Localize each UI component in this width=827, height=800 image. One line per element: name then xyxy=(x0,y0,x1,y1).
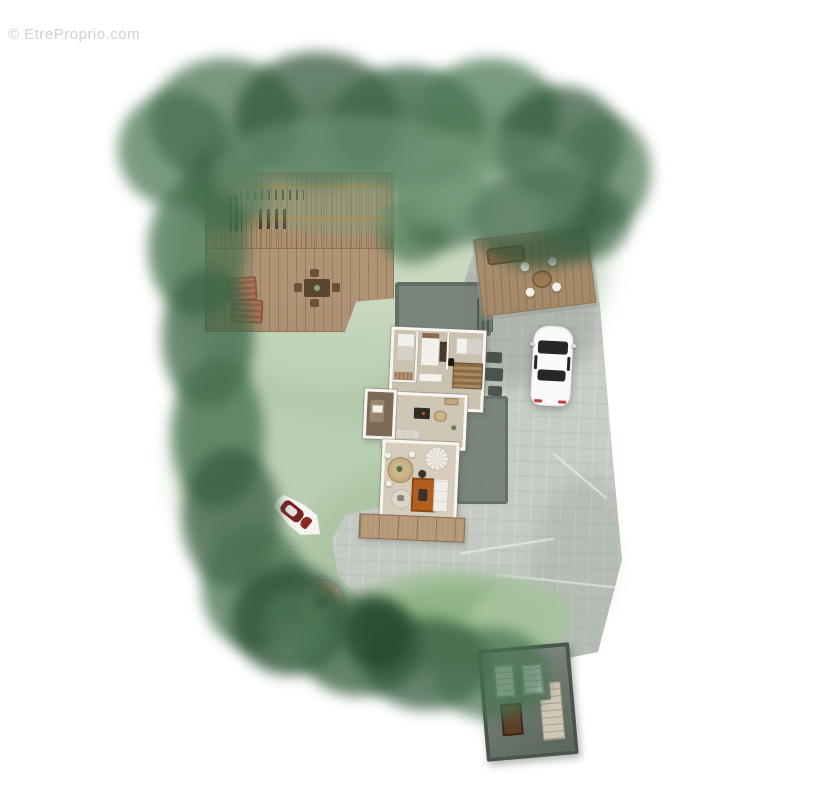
round-rug xyxy=(391,489,412,510)
car-taillight xyxy=(558,400,566,403)
deck-chair xyxy=(310,269,319,277)
deck-chair xyxy=(310,299,319,307)
sideboard xyxy=(418,373,442,383)
bed xyxy=(396,333,415,362)
annex-room xyxy=(363,388,397,439)
site-plan: © EtreProprio.com xyxy=(0,0,827,800)
car-taillight xyxy=(534,399,542,402)
dining-chair xyxy=(385,452,391,458)
living-room-block xyxy=(379,439,459,521)
armchair xyxy=(397,495,404,501)
dining-chair xyxy=(386,480,392,486)
kitchen-accessory xyxy=(422,412,425,415)
car-windshield xyxy=(538,340,569,355)
car-rear-window xyxy=(537,369,566,381)
deck-chair xyxy=(332,283,340,292)
tree-clump xyxy=(345,598,410,670)
house-floor-plan xyxy=(348,318,498,549)
tree-clump xyxy=(435,628,550,720)
house-plant xyxy=(451,425,456,430)
bed xyxy=(420,332,440,367)
wood-stove xyxy=(448,358,454,366)
round-rattan-chair xyxy=(424,446,449,471)
deck-chair xyxy=(294,283,302,292)
bed xyxy=(456,337,484,355)
bed-blanket xyxy=(397,345,414,360)
kitchen-table xyxy=(434,410,447,422)
car-mirror xyxy=(530,342,535,346)
wardrobe xyxy=(439,342,447,362)
bed-blanket xyxy=(467,339,483,355)
car-mirror xyxy=(571,344,576,348)
staircase xyxy=(452,362,483,389)
tree-clump xyxy=(262,588,332,663)
patio-chair xyxy=(525,287,535,297)
table-plant xyxy=(314,285,320,291)
watermark: © EtreProprio.com xyxy=(8,26,140,43)
sofa xyxy=(433,478,449,512)
coffee-table xyxy=(418,489,428,501)
hall-runner-rug xyxy=(394,372,412,381)
bench-seat xyxy=(444,398,458,406)
patio-chair xyxy=(552,282,562,292)
dining-chair xyxy=(409,451,415,457)
annex-fixture xyxy=(372,405,383,413)
foliage-fill xyxy=(400,130,590,240)
bed-headboard xyxy=(422,333,439,339)
patio-round-table xyxy=(531,269,553,289)
house-terrace xyxy=(358,513,465,543)
car xyxy=(530,325,574,407)
